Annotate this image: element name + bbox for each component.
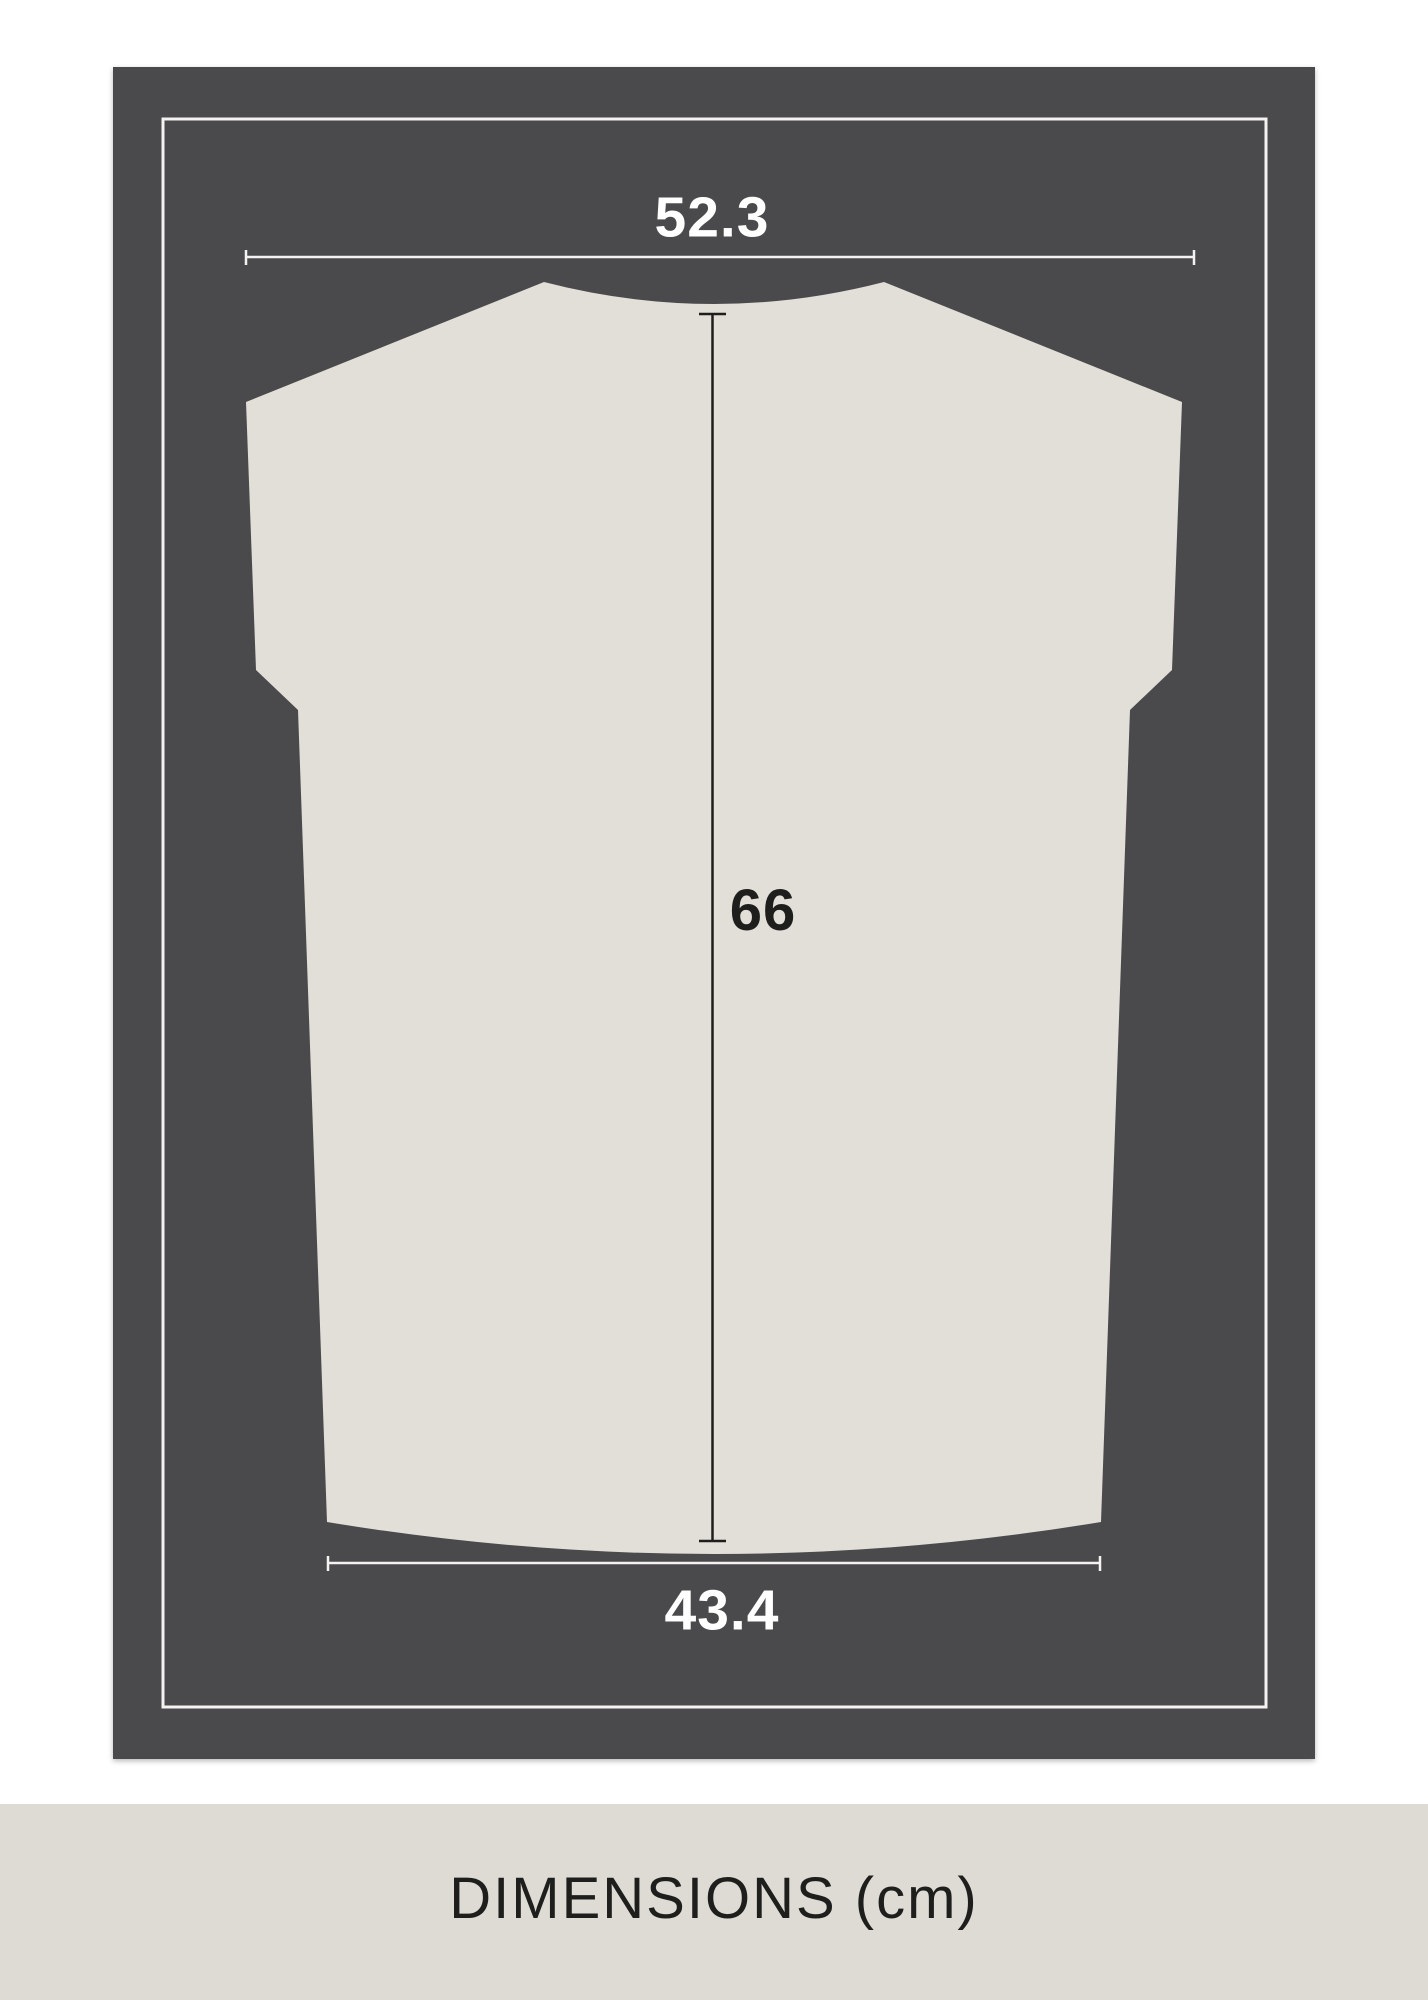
diagram-canvas [0,0,1428,2000]
measurement-top-width: 52.3 [655,190,770,247]
footer-caption: DIMENSIONS (cm) [449,1870,978,1928]
top-width-dimension-line [246,250,1194,265]
measurement-length: 66 [730,882,797,940]
dimensions-diagram-page: 52.3 66 43.4 DIMENSIONS (cm) [0,0,1428,2000]
garment-silhouette [246,282,1182,1554]
measurement-bottom-width: 43.4 [665,1583,780,1640]
bottom-width-dimension-line [328,1556,1100,1571]
